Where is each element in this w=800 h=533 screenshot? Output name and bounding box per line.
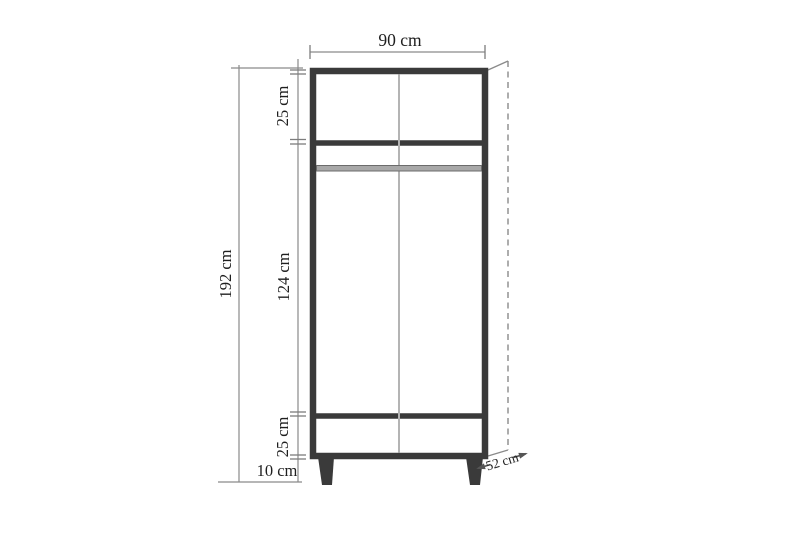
depth-top-edge [488, 61, 508, 70]
depth-label: 52 cm [484, 449, 521, 473]
depth-arrow-right [518, 450, 528, 458]
width-dimension-label: 90 cm [378, 30, 422, 50]
diagram-svg: 90 cm 192 cm 25 cm 124 cm 25 cm 10 cm [0, 0, 800, 533]
right-leg [466, 457, 483, 485]
bottom-section-label: 25 cm [273, 416, 292, 457]
middle-section-label: 124 cm [274, 252, 293, 301]
section-dimensions: 25 cm 124 cm 25 cm 10 cm [257, 59, 306, 482]
hanging-rod [317, 166, 482, 172]
left-leg [318, 457, 334, 485]
depth-edges [488, 61, 508, 456]
top-section-label: 25 cm [273, 85, 292, 126]
wardrobe [313, 71, 485, 485]
width-dimension: 90 cm [310, 30, 485, 59]
total-height-label: 192 cm [216, 249, 235, 298]
wardrobe-dimension-diagram: 90 cm 192 cm 25 cm 124 cm 25 cm 10 cm [0, 0, 800, 533]
leg-height-label: 10 cm [257, 461, 298, 480]
